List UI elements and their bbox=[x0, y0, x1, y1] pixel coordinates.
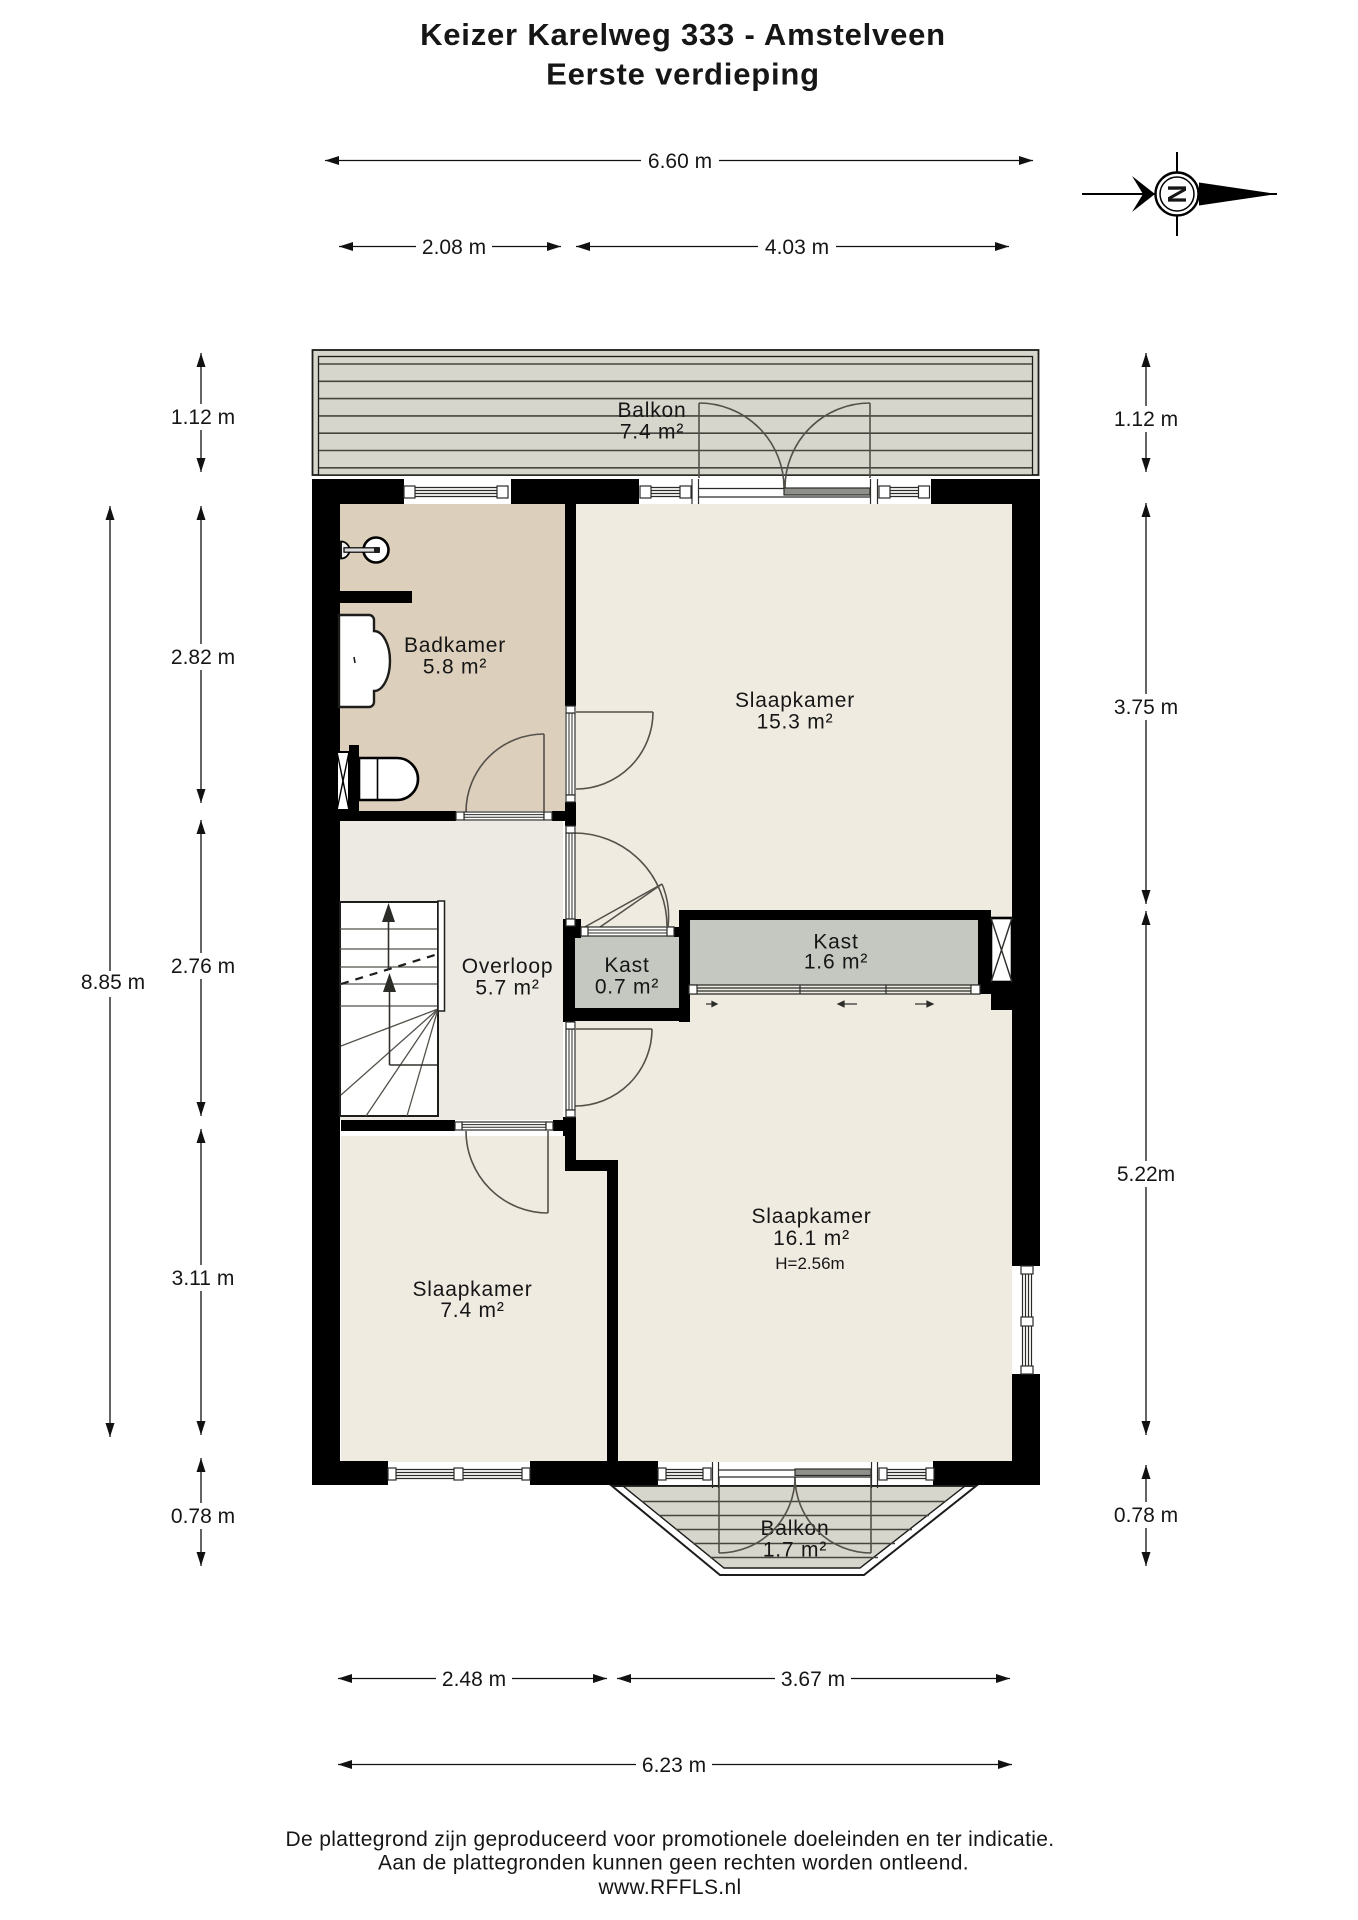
svg-text:2.76 m: 2.76 m bbox=[171, 955, 235, 978]
svg-text:3.75 m: 3.75 m bbox=[1114, 696, 1178, 719]
svg-text:3.67 m: 3.67 m bbox=[781, 1668, 845, 1691]
svg-text:0.78 m: 0.78 m bbox=[1114, 1504, 1178, 1527]
svg-text:5.8 m²: 5.8 m² bbox=[423, 656, 487, 679]
svg-text:5.7 m²: 5.7 m² bbox=[475, 977, 539, 1000]
svg-text:Keizer Karelweg 333 - Amstelve: Keizer Karelweg 333 - Amstelveen bbox=[420, 17, 946, 52]
svg-text:Eerste verdieping: Eerste verdieping bbox=[546, 57, 820, 92]
svg-text:0.78 m: 0.78 m bbox=[171, 1505, 235, 1528]
svg-text:15.3 m²: 15.3 m² bbox=[757, 711, 834, 734]
svg-text:1.7 m²: 1.7 m² bbox=[763, 1539, 827, 1562]
svg-text:1.12 m: 1.12 m bbox=[1114, 408, 1178, 431]
svg-text:2.08 m: 2.08 m bbox=[422, 236, 486, 259]
svg-text:De plattegrond zijn geproducee: De plattegrond zijn geproduceerd voor pr… bbox=[286, 1828, 1055, 1851]
svg-text:Aan de plattegronden kunnen ge: Aan de plattegronden kunnen geen rechten… bbox=[378, 1852, 969, 1875]
svg-text:2.82 m: 2.82 m bbox=[171, 646, 235, 669]
svg-text:H=2.56m: H=2.56m bbox=[775, 1254, 844, 1273]
svg-text:6.23 m: 6.23 m bbox=[642, 1754, 706, 1777]
svg-text:3.11 m: 3.11 m bbox=[172, 1267, 235, 1290]
svg-text:4.03 m: 4.03 m bbox=[765, 236, 829, 259]
svg-text:Overloop: Overloop bbox=[462, 955, 554, 978]
svg-text:Slaapkamer: Slaapkamer bbox=[735, 689, 855, 712]
svg-text:0.7 m²: 0.7 m² bbox=[595, 976, 659, 999]
svg-text:16.1 m²: 16.1 m² bbox=[773, 1227, 850, 1250]
svg-text:Slaapkamer: Slaapkamer bbox=[751, 1205, 871, 1228]
svg-text:1.12 m: 1.12 m bbox=[171, 406, 235, 429]
svg-text:N: N bbox=[1162, 185, 1192, 204]
svg-text:7.4 m²: 7.4 m² bbox=[440, 1299, 504, 1322]
svg-text:2.48 m: 2.48 m bbox=[442, 1668, 506, 1691]
svg-text:Badkamer: Badkamer bbox=[404, 634, 506, 657]
svg-text:7.4 m²: 7.4 m² bbox=[620, 421, 684, 444]
svg-text:6.60 m: 6.60 m bbox=[648, 150, 712, 173]
svg-text:5.22m: 5.22m bbox=[1117, 1163, 1175, 1186]
svg-text:Balkon: Balkon bbox=[617, 399, 686, 422]
svg-text:Slaapkamer: Slaapkamer bbox=[412, 1278, 532, 1301]
svg-text:8.85 m: 8.85 m bbox=[81, 971, 145, 994]
svg-text:www.RFFLS.nl: www.RFFLS.nl bbox=[597, 1876, 741, 1899]
svg-text:Kast: Kast bbox=[604, 954, 649, 977]
svg-text:Balkon: Balkon bbox=[760, 1517, 829, 1540]
svg-text:1.6 m²: 1.6 m² bbox=[804, 951, 868, 974]
